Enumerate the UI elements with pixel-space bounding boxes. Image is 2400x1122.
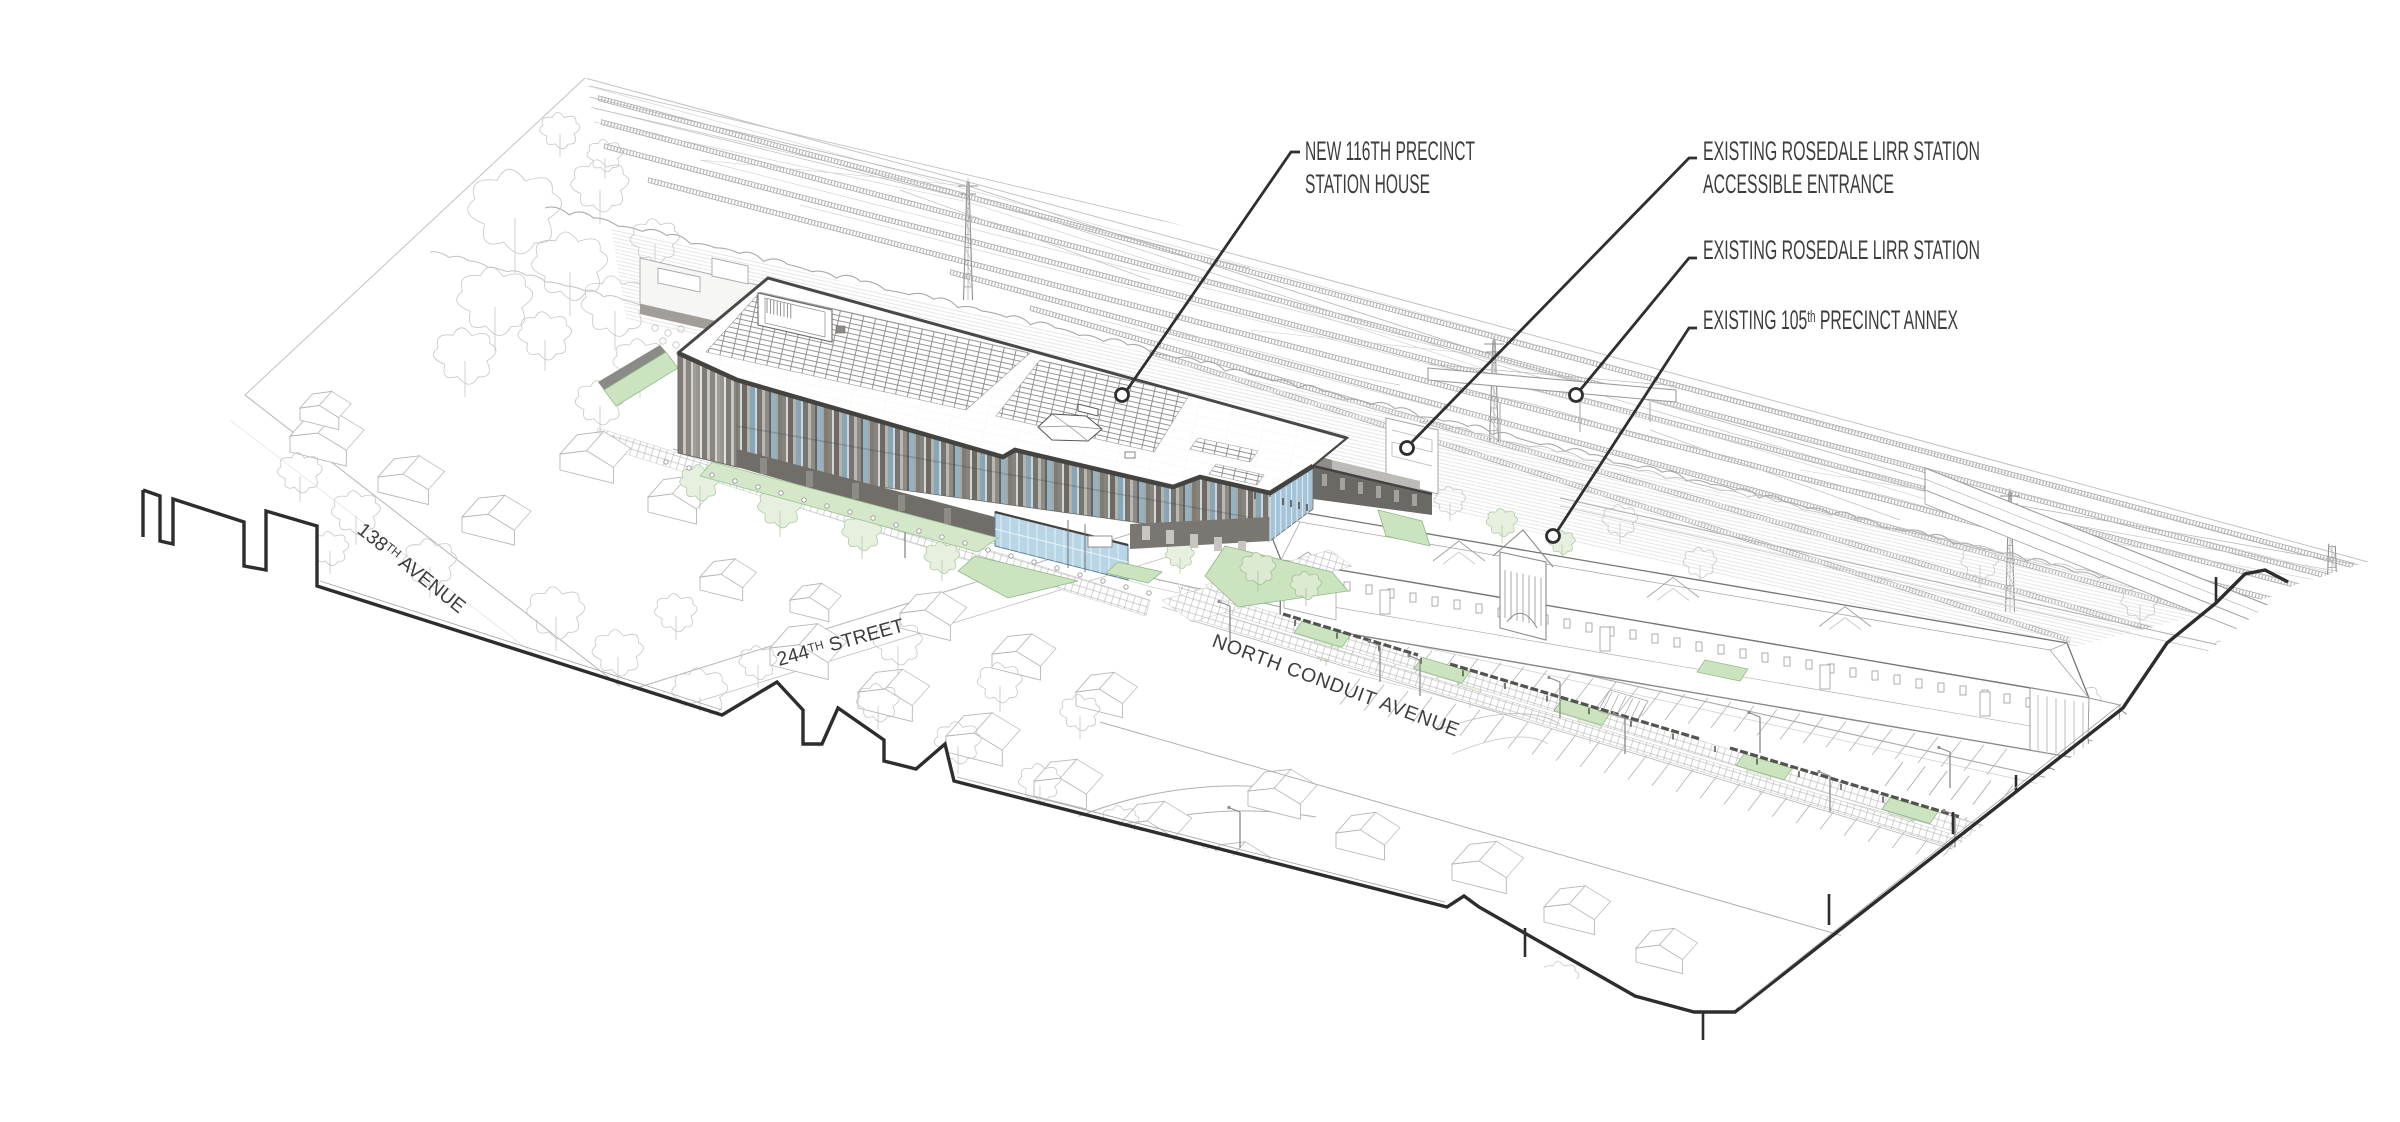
svg-text:EXISTING ROSEDALE LIRR STATION: EXISTING ROSEDALE LIRR STATION <box>1703 136 1980 166</box>
svg-text:STATION HOUSE: STATION HOUSE <box>1305 169 1430 199</box>
svg-text:NEW 116TH PRECINCT: NEW 116TH PRECINCT <box>1305 136 1475 166</box>
svg-text:ACCESSIBLE ENTRANCE: ACCESSIBLE ENTRANCE <box>1703 169 1894 199</box>
svg-text:EXISTING 105th PRECINCT ANNEX: EXISTING 105th PRECINCT ANNEX <box>1703 305 1958 335</box>
svg-text:EXISTING ROSEDALE LIRR STATION: EXISTING ROSEDALE LIRR STATION <box>1703 235 1980 265</box>
